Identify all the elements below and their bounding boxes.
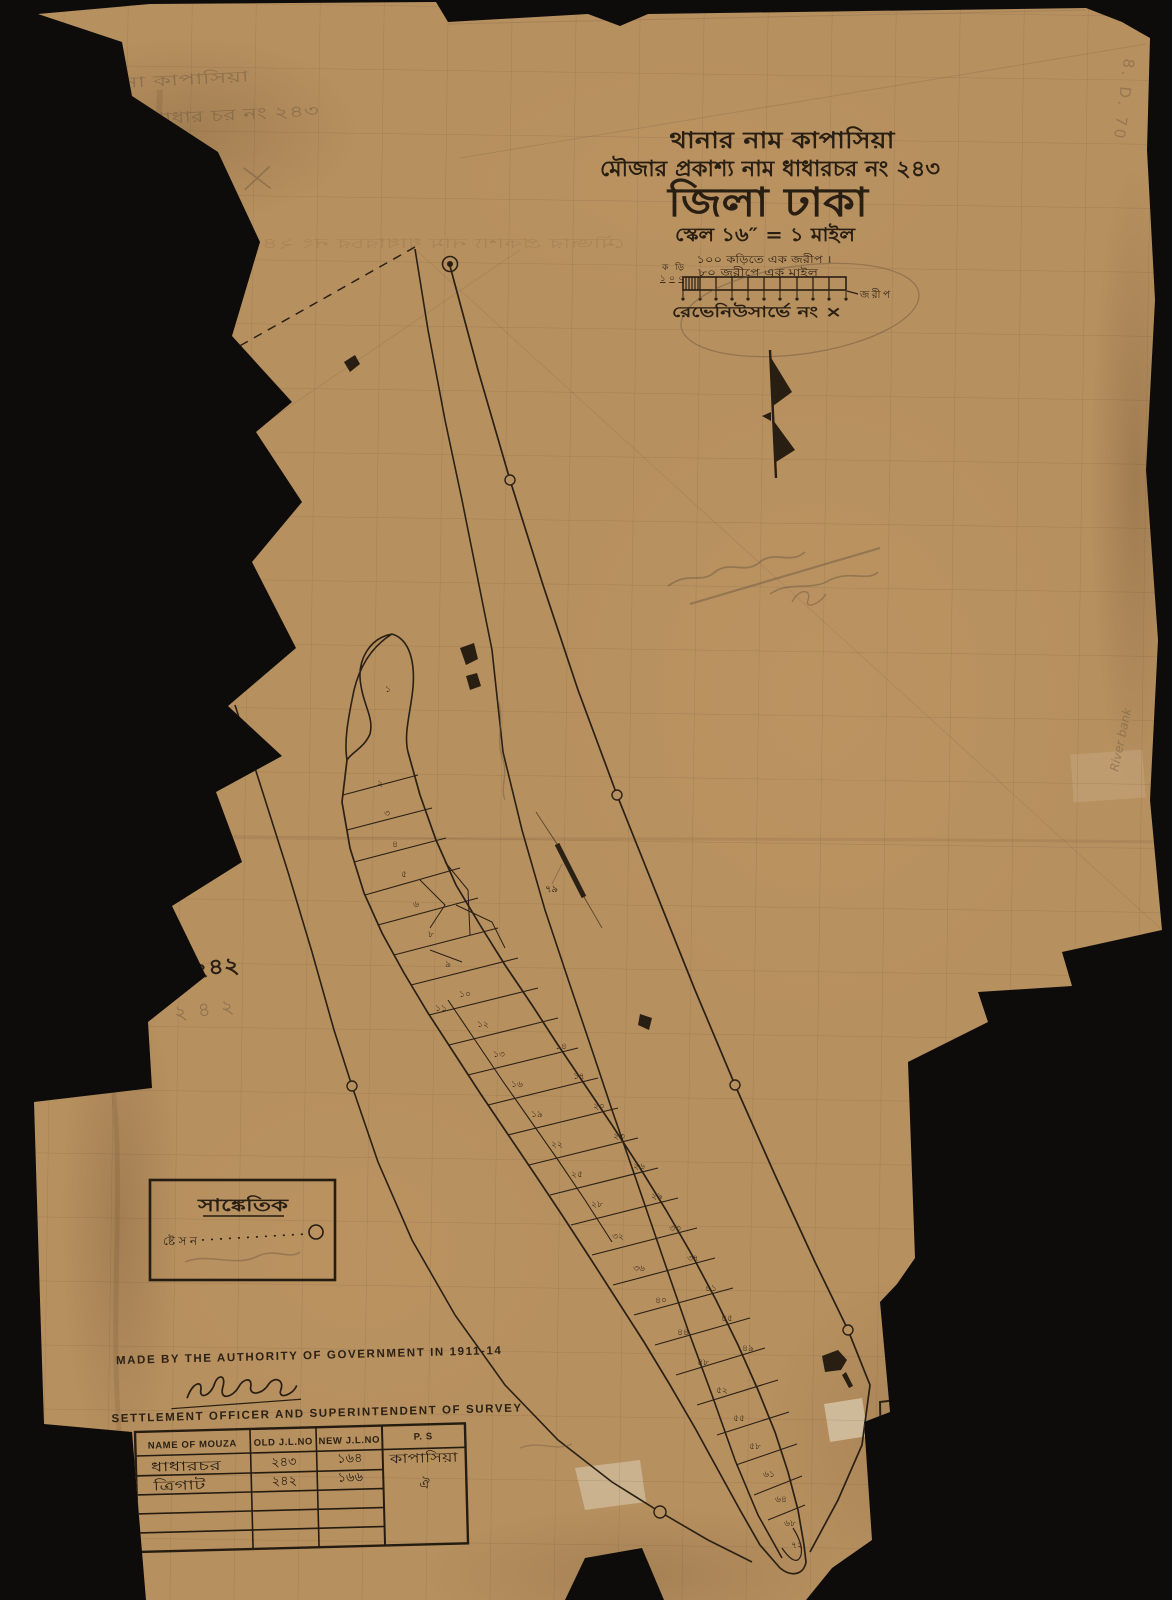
thana-name-line: থানার নাম কাপাসিয়া xyxy=(670,126,897,154)
plot-number: ৪ xyxy=(392,840,398,850)
plot-number: ৩৩ xyxy=(669,1224,681,1234)
table-header-ps: P. S xyxy=(414,1431,433,1442)
plot-number: ১৪ xyxy=(555,1042,567,1052)
plot-number: ১০ xyxy=(459,990,471,1000)
cell-mouza-2: ত্রিগাট xyxy=(152,1477,207,1494)
cell-oldjl-1: ২৪৩ xyxy=(271,1455,297,1471)
plot-number: ৪৪ xyxy=(677,1328,689,1338)
plot-number: ৬ xyxy=(413,900,419,910)
plot-number: ৪৯ xyxy=(742,1344,754,1354)
cell-ps-1: কাপাসিয়া xyxy=(388,1450,458,1468)
plot-number: ৪০ xyxy=(655,1296,667,1306)
road-number-label: ৭৯ xyxy=(545,884,558,895)
plot-number: ২০ xyxy=(593,1102,605,1112)
plot-number: ১৭ xyxy=(573,1072,585,1082)
plot-number: ৫৮ xyxy=(749,1442,761,1452)
plot-number: ৫ xyxy=(401,870,407,880)
plot-number: ৬৮ xyxy=(784,1519,796,1529)
ghost-ink-transfer: মৌজার প্রকাশ্য নাম ধাধারচর নং ২৪৩ xyxy=(245,235,625,252)
table-header-new-jl: NEW J.L.NO xyxy=(318,1435,380,1448)
plot-number: ১৩ xyxy=(493,1050,505,1060)
plot-number: ৩ xyxy=(384,809,390,819)
district-line: জিলা ঢাকা xyxy=(666,178,870,226)
plot-number: ৯ xyxy=(445,960,451,970)
plot-number: ১ xyxy=(385,685,391,695)
plot-number: ৫২ xyxy=(716,1386,728,1396)
mouza-name-line: মৌজার প্রকাশ্য নাম ধাধারচর নং ২৪৩ xyxy=(600,155,940,182)
scale-bar-left-label-bottom: ১০০ xyxy=(660,274,684,284)
plot-number: ২৮ xyxy=(591,1200,603,1210)
scale-bar-right-label: জরীপ xyxy=(859,288,891,301)
plot-number: ৬১ xyxy=(763,1470,775,1480)
plot-number: ২৫ xyxy=(571,1170,583,1180)
plot-number: ২৩ xyxy=(613,1132,625,1142)
table-header-old-jl: OLD J.L.NO xyxy=(254,1436,314,1449)
legend-station-label: ষ্টেসন xyxy=(163,1234,198,1248)
cell-oldjl-2: ২৪২ xyxy=(271,1474,297,1490)
revenue-survey-note: রেভেনিউসার্ভে নং × xyxy=(672,302,842,321)
plot-number: ১৯ xyxy=(531,1110,543,1120)
ghost-text: মৌজার প্রকাশ্য নাম ধাধারচর নং ২৪৩ xyxy=(245,235,625,252)
plot-number: ৫৫ xyxy=(733,1414,745,1424)
cell-newjl-2: ১৬৬ xyxy=(337,1470,363,1486)
plot-number: ১৬ xyxy=(511,1080,523,1090)
scanned-survey-map: মৌজার প্রকাশ্য নাম ধাধারচর নং ২৪৩ থানার … xyxy=(0,0,1172,1600)
legend-title: সাঙ্কেতিক xyxy=(197,1194,290,1216)
plot-number: ৩৭ xyxy=(687,1254,699,1264)
plot-number: ২২ xyxy=(551,1140,563,1150)
cell-ps-2: ঐ xyxy=(419,1476,430,1492)
cell-newjl-1: ১৬৪ xyxy=(337,1451,363,1467)
plot-number: ৭২ xyxy=(791,1541,803,1551)
plot-number: ৪৫ xyxy=(721,1314,733,1324)
plot-number: ২৯ xyxy=(651,1192,663,1202)
scale-line: স্কেল ১৬″ = ১ মাইল xyxy=(675,223,856,246)
plot-number: ৪১ xyxy=(705,1284,717,1294)
plot-number: ৪৮ xyxy=(697,1358,709,1368)
plot-number: ২ xyxy=(377,779,383,789)
table-header-mouza: NAME OF MOUZA xyxy=(148,1438,237,1451)
cell-mouza-1: ধাধারচর xyxy=(151,1459,223,1476)
plot-number: ৮ xyxy=(428,930,434,940)
survey-map-canvas: মৌজার প্রকাশ্য নাম ধাধারচর নং ২৪৩ থানার … xyxy=(0,0,1172,1600)
plot-number: ৬৪ xyxy=(775,1495,787,1505)
plot-number: ২৬ xyxy=(633,1162,645,1172)
plot-number: ১১ xyxy=(435,1004,447,1014)
plot-number: ৩৬ xyxy=(633,1264,645,1274)
plot-number: ১২ xyxy=(477,1020,489,1030)
plot-number: ৩২ xyxy=(612,1232,624,1242)
